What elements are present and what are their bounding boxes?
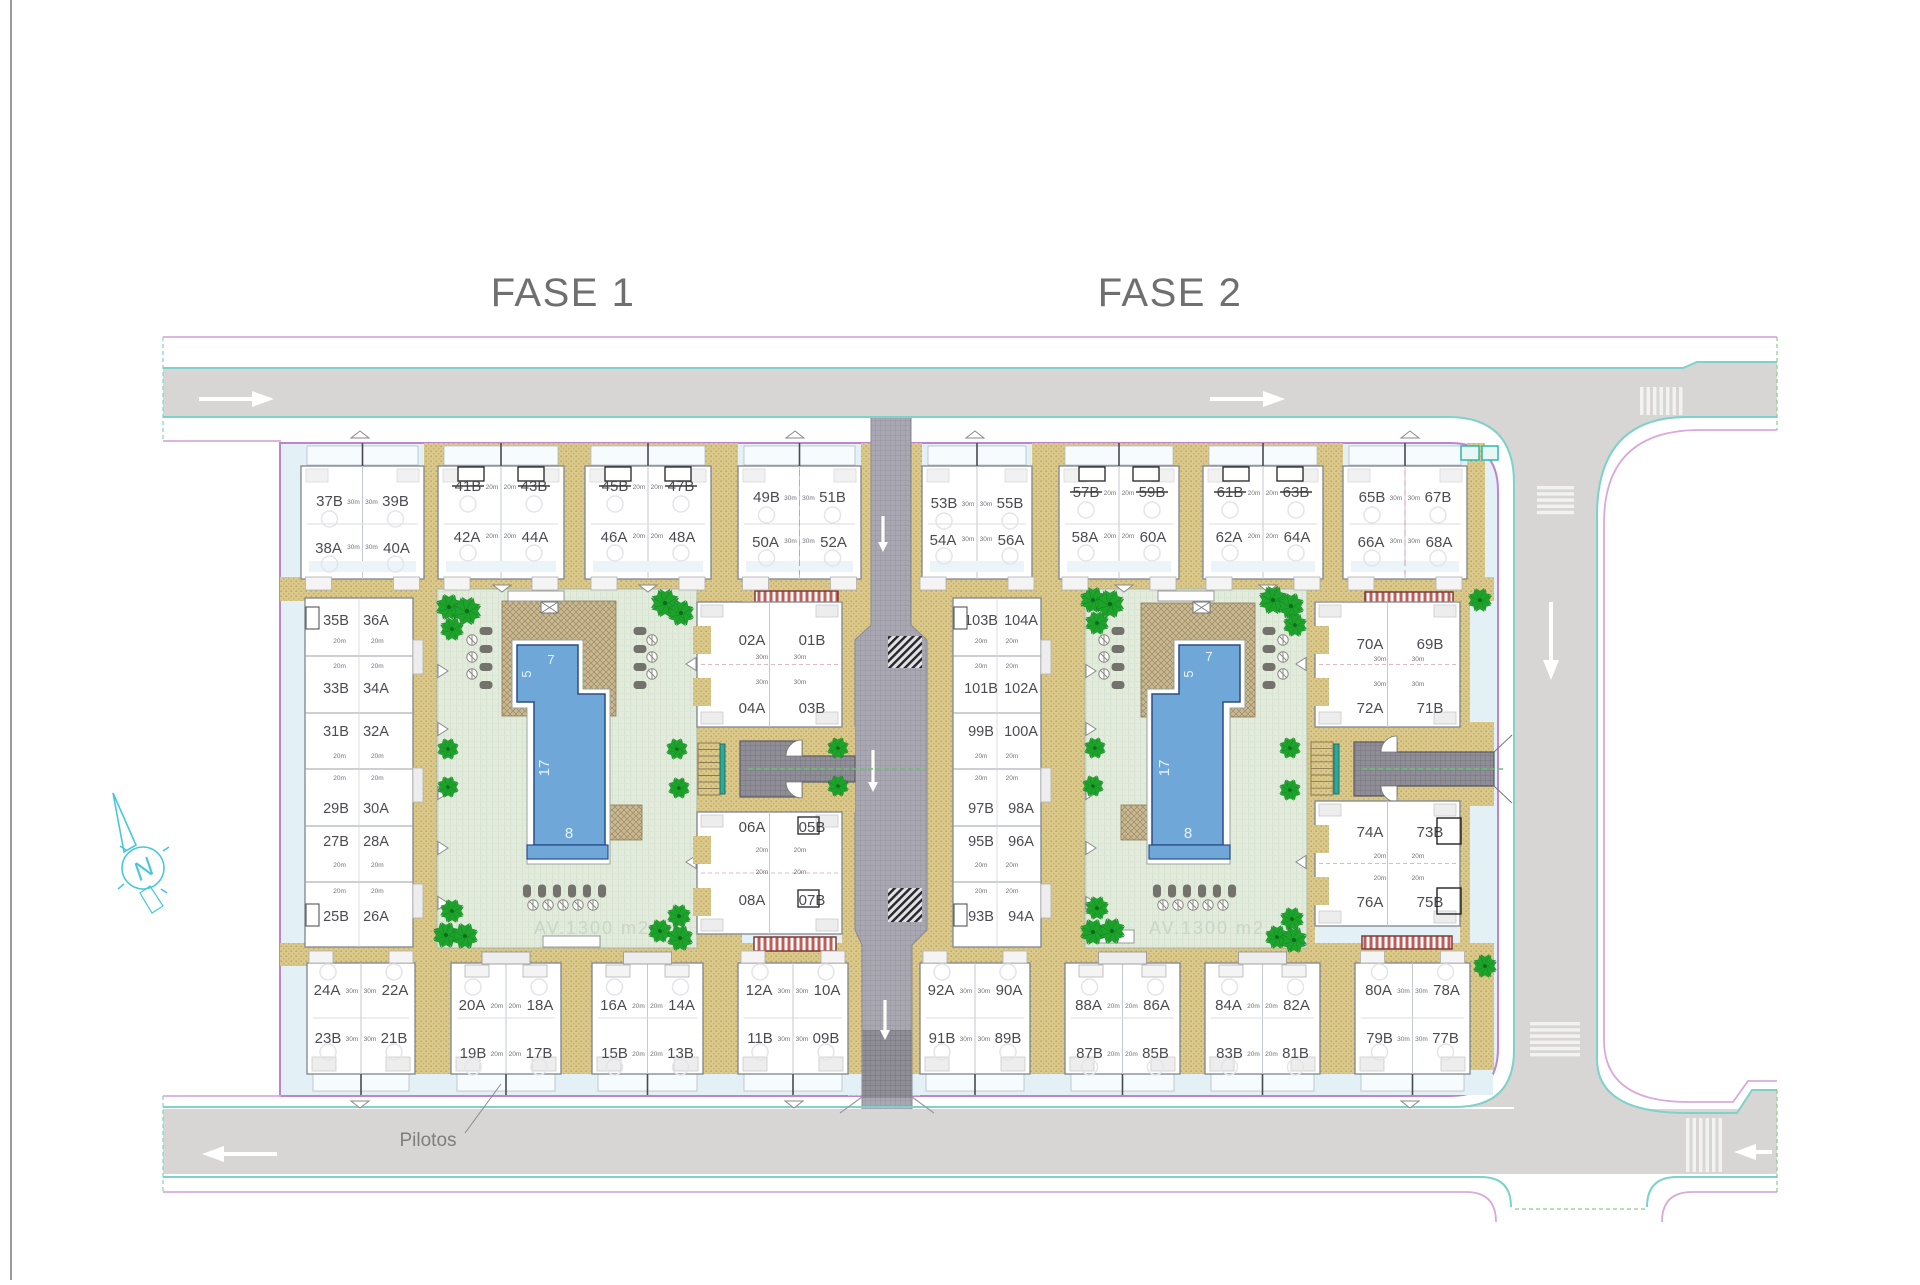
svg-text:20m: 20m [975, 753, 988, 760]
svg-text:20m: 20m [975, 888, 988, 895]
svg-text:72A: 72A [1357, 700, 1384, 717]
svg-text:30m: 30m [962, 536, 975, 543]
svg-text:20m: 20m [509, 1003, 522, 1010]
svg-text:02A: 02A [739, 632, 766, 649]
svg-text:20m: 20m [333, 888, 346, 895]
svg-text:38A: 38A [315, 540, 342, 557]
svg-text:80A: 80A [1365, 982, 1392, 999]
svg-text:49B: 49B [753, 489, 780, 506]
svg-text:20m: 20m [756, 847, 769, 854]
svg-text:20m: 20m [1107, 1051, 1120, 1058]
svg-text:62A: 62A [1216, 529, 1243, 546]
svg-text:14A: 14A [668, 997, 695, 1014]
svg-text:25B: 25B [323, 909, 349, 925]
svg-text:58A: 58A [1072, 529, 1099, 546]
svg-text:30m: 30m [1374, 681, 1387, 688]
svg-text:94A: 94A [1008, 909, 1034, 925]
svg-text:30m: 30m [365, 544, 378, 551]
svg-text:30m: 30m [784, 538, 797, 545]
svg-text:20m: 20m [1247, 1003, 1260, 1010]
svg-text:20m: 20m [1122, 490, 1135, 497]
svg-text:20m: 20m [650, 1003, 663, 1010]
svg-text:30m: 30m [347, 499, 360, 506]
svg-text:17: 17 [1156, 760, 1173, 777]
svg-text:20m: 20m [1006, 775, 1019, 782]
svg-text:20m: 20m [371, 663, 384, 670]
svg-text:20m: 20m [1006, 753, 1019, 760]
svg-text:74A: 74A [1357, 824, 1384, 841]
svg-text:AV.1300 m2: AV.1300 m2 [534, 918, 650, 938]
svg-text:20m: 20m [1104, 490, 1117, 497]
svg-text:30m: 30m [980, 501, 993, 508]
svg-text:20m: 20m [975, 775, 988, 782]
svg-text:20m: 20m [1374, 875, 1387, 882]
svg-text:82A: 82A [1283, 997, 1310, 1014]
svg-text:20m: 20m [650, 1051, 663, 1058]
svg-text:20m: 20m [1104, 533, 1117, 540]
svg-text:30m: 30m [778, 988, 791, 995]
svg-text:20m: 20m [1374, 853, 1387, 860]
svg-text:92A: 92A [928, 982, 955, 999]
svg-text:20m: 20m [1006, 663, 1019, 670]
svg-text:30m: 30m [1408, 538, 1421, 545]
svg-text:30m: 30m [1374, 656, 1387, 663]
svg-text:20m: 20m [1107, 1003, 1120, 1010]
svg-text:20m: 20m [1125, 1051, 1138, 1058]
svg-text:42A: 42A [454, 529, 481, 546]
svg-text:30m: 30m [978, 988, 991, 995]
svg-text:20m: 20m [975, 663, 988, 670]
svg-text:7: 7 [1205, 649, 1212, 664]
svg-text:20m: 20m [371, 775, 384, 782]
svg-text:95B: 95B [968, 834, 994, 850]
svg-text:30m: 30m [960, 988, 973, 995]
svg-text:20m: 20m [1125, 1003, 1138, 1010]
svg-text:16A: 16A [600, 997, 627, 1014]
svg-text:20m: 20m [504, 533, 517, 540]
svg-text:20m: 20m [794, 869, 807, 876]
svg-text:30A: 30A [363, 801, 389, 817]
svg-text:30m: 30m [347, 544, 360, 551]
svg-text:18A: 18A [527, 997, 554, 1014]
svg-text:54A: 54A [930, 532, 957, 549]
svg-text:70A: 70A [1357, 636, 1384, 653]
svg-text:73B: 73B [1417, 824, 1444, 841]
svg-text:96A: 96A [1008, 834, 1034, 850]
svg-text:65B: 65B [1359, 489, 1386, 506]
svg-text:55B: 55B [997, 495, 1024, 512]
svg-text:30m: 30m [980, 536, 993, 543]
svg-text:101B: 101B [964, 681, 998, 697]
svg-text:8: 8 [1184, 825, 1192, 842]
svg-text:30m: 30m [756, 654, 769, 661]
svg-text:20m: 20m [1006, 862, 1019, 869]
svg-text:20m: 20m [794, 847, 807, 854]
svg-text:26A: 26A [363, 909, 389, 925]
svg-text:20m: 20m [1266, 490, 1279, 497]
svg-text:20m: 20m [486, 484, 499, 491]
svg-text:20m: 20m [371, 888, 384, 895]
svg-text:46A: 46A [601, 529, 628, 546]
svg-text:20m: 20m [651, 533, 664, 540]
svg-text:28A: 28A [363, 834, 389, 850]
svg-text:7: 7 [547, 652, 554, 667]
svg-text:20m: 20m [504, 484, 517, 491]
svg-text:20m: 20m [1412, 853, 1425, 860]
svg-text:20m: 20m [1248, 533, 1261, 540]
svg-text:20m: 20m [1248, 490, 1261, 497]
svg-text:53B: 53B [931, 495, 958, 512]
svg-text:60A: 60A [1140, 529, 1167, 546]
svg-text:22A: 22A [382, 982, 409, 999]
svg-text:90A: 90A [996, 982, 1023, 999]
svg-text:FASE 1: FASE 1 [491, 271, 636, 315]
svg-text:20m: 20m [371, 638, 384, 645]
svg-text:20m: 20m [632, 1051, 645, 1058]
svg-text:88A: 88A [1075, 997, 1102, 1014]
svg-text:51B: 51B [819, 489, 846, 506]
svg-text:76A: 76A [1357, 894, 1384, 911]
svg-text:103B: 103B [964, 613, 998, 629]
svg-text:30m: 30m [794, 654, 807, 661]
svg-text:5: 5 [519, 670, 534, 677]
svg-text:30m: 30m [1415, 988, 1428, 995]
svg-text:30m: 30m [796, 988, 809, 995]
svg-text:20m: 20m [333, 753, 346, 760]
svg-text:30m: 30m [346, 1036, 359, 1043]
svg-text:93B: 93B [968, 909, 994, 925]
svg-text:30m: 30m [1390, 538, 1403, 545]
svg-text:20A: 20A [459, 997, 486, 1014]
svg-text:30m: 30m [784, 495, 797, 502]
svg-text:30m: 30m [1397, 988, 1410, 995]
svg-text:20m: 20m [1265, 1003, 1278, 1010]
svg-text:20m: 20m [491, 1051, 504, 1058]
svg-text:08A: 08A [739, 892, 766, 909]
svg-text:20m: 20m [1006, 888, 1019, 895]
svg-text:30m: 30m [756, 679, 769, 686]
svg-text:30m: 30m [1415, 1036, 1428, 1043]
svg-text:24A: 24A [314, 982, 341, 999]
svg-text:30m: 30m [978, 1036, 991, 1043]
svg-text:30m: 30m [802, 538, 815, 545]
svg-text:20m: 20m [633, 484, 646, 491]
svg-text:30m: 30m [960, 1036, 973, 1043]
svg-text:20m: 20m [1247, 1051, 1260, 1058]
svg-text:75B: 75B [1417, 894, 1444, 911]
svg-text:33B: 33B [323, 681, 349, 697]
svg-text:Pilotos: Pilotos [399, 1130, 456, 1151]
svg-text:30m: 30m [346, 988, 359, 995]
svg-text:20m: 20m [486, 533, 499, 540]
svg-text:20m: 20m [633, 533, 646, 540]
svg-text:104A: 104A [1004, 613, 1038, 629]
svg-text:01B: 01B [799, 632, 826, 649]
svg-text:34A: 34A [363, 681, 389, 697]
svg-text:68A: 68A [1426, 534, 1453, 551]
svg-text:48A: 48A [669, 529, 696, 546]
svg-text:40A: 40A [383, 540, 410, 557]
svg-text:20m: 20m [333, 638, 346, 645]
svg-text:52A: 52A [820, 534, 847, 551]
svg-text:98A: 98A [1008, 801, 1034, 817]
svg-text:AV.1300 m2: AV.1300 m2 [1149, 918, 1265, 938]
svg-text:35B: 35B [323, 613, 349, 629]
svg-text:64A: 64A [1284, 529, 1311, 546]
svg-text:17: 17 [536, 760, 553, 777]
svg-text:20m: 20m [333, 862, 346, 869]
svg-text:30m: 30m [802, 495, 815, 502]
svg-text:30m: 30m [778, 1036, 791, 1043]
svg-text:20m: 20m [632, 1003, 645, 1010]
svg-text:20m: 20m [1412, 875, 1425, 882]
svg-text:69B: 69B [1417, 636, 1444, 653]
svg-text:10A: 10A [814, 982, 841, 999]
svg-text:03B: 03B [799, 700, 826, 717]
svg-text:66A: 66A [1358, 534, 1385, 551]
svg-text:20m: 20m [1006, 638, 1019, 645]
svg-text:20m: 20m [1265, 1051, 1278, 1058]
svg-text:30m: 30m [1412, 656, 1425, 663]
svg-text:30m: 30m [364, 1036, 377, 1043]
svg-text:30m: 30m [1412, 681, 1425, 688]
svg-text:20m: 20m [1266, 533, 1279, 540]
svg-text:20m: 20m [756, 869, 769, 876]
svg-text:20m: 20m [1122, 533, 1135, 540]
svg-text:20m: 20m [509, 1051, 522, 1058]
svg-text:100A: 100A [1004, 724, 1038, 740]
svg-text:20m: 20m [371, 753, 384, 760]
svg-text:5: 5 [1181, 670, 1196, 677]
svg-text:67B: 67B [1425, 489, 1452, 506]
svg-text:20m: 20m [333, 663, 346, 670]
svg-text:20m: 20m [371, 862, 384, 869]
svg-text:36A: 36A [363, 613, 389, 629]
svg-text:50A: 50A [752, 534, 779, 551]
svg-text:30m: 30m [365, 499, 378, 506]
svg-text:20m: 20m [975, 862, 988, 869]
svg-text:84A: 84A [1215, 997, 1242, 1014]
svg-text:30m: 30m [364, 988, 377, 995]
svg-text:20m: 20m [651, 484, 664, 491]
svg-text:20m: 20m [975, 638, 988, 645]
svg-text:71B: 71B [1417, 700, 1444, 717]
svg-text:102A: 102A [1004, 681, 1038, 697]
svg-text:12A: 12A [746, 982, 773, 999]
svg-text:30m: 30m [1397, 1036, 1410, 1043]
svg-text:04A: 04A [739, 700, 766, 717]
svg-text:78A: 78A [1433, 982, 1460, 999]
svg-text:20m: 20m [491, 1003, 504, 1010]
svg-text:44A: 44A [522, 529, 549, 546]
svg-text:56A: 56A [998, 532, 1025, 549]
svg-text:8: 8 [565, 825, 573, 842]
svg-text:31B: 31B [323, 724, 349, 740]
svg-text:FASE 2: FASE 2 [1098, 271, 1243, 315]
svg-text:39B: 39B [382, 493, 409, 510]
svg-text:29B: 29B [323, 801, 349, 817]
svg-text:30m: 30m [796, 1036, 809, 1043]
svg-text:20m: 20m [333, 775, 346, 782]
svg-text:99B: 99B [968, 724, 994, 740]
svg-text:30m: 30m [1390, 495, 1403, 502]
svg-text:30m: 30m [794, 679, 807, 686]
svg-text:97B: 97B [968, 801, 994, 817]
svg-text:27B: 27B [323, 834, 349, 850]
svg-text:30m: 30m [1408, 495, 1421, 502]
svg-text:86A: 86A [1143, 997, 1170, 1014]
svg-text:37B: 37B [316, 493, 343, 510]
svg-text:06A: 06A [739, 819, 766, 836]
svg-text:30m: 30m [962, 501, 975, 508]
svg-text:32A: 32A [363, 724, 389, 740]
